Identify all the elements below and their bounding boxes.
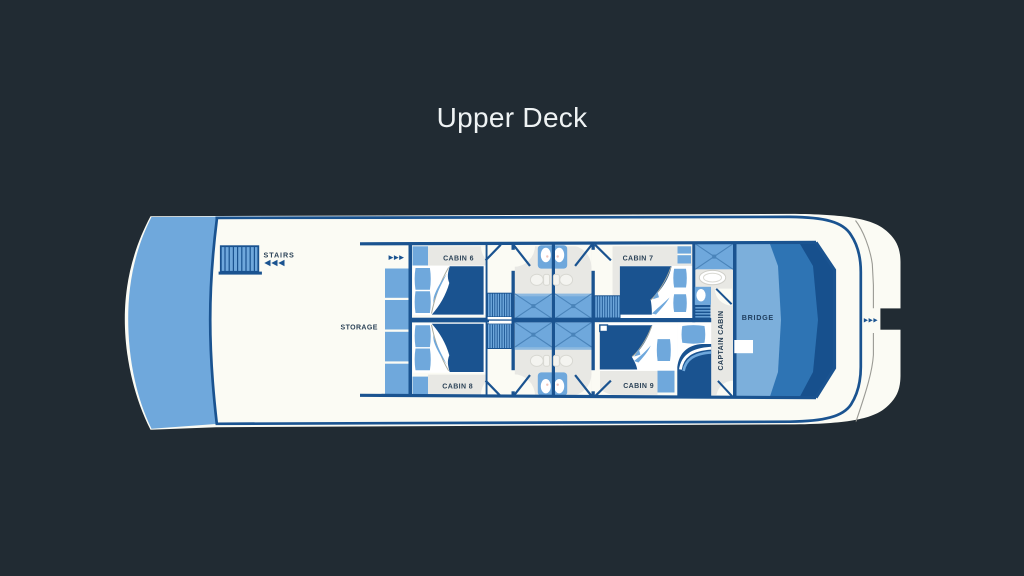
- svg-text:CAPTAIN CABIN: CAPTAIN CABIN: [718, 311, 725, 371]
- svg-text:BRIDGE: BRIDGE: [742, 313, 774, 322]
- svg-text:STORAGE: STORAGE: [341, 324, 378, 331]
- svg-text:CABIN 6: CABIN 6: [443, 255, 474, 262]
- svg-text:CABIN 8: CABIN 8: [442, 384, 473, 391]
- svg-text:Upper Deck: Upper Deck: [437, 102, 589, 133]
- svg-text:CABIN 9: CABIN 9: [623, 383, 654, 390]
- svg-text:CABIN 7: CABIN 7: [623, 255, 654, 262]
- svg-text:STAIRS: STAIRS: [264, 251, 295, 260]
